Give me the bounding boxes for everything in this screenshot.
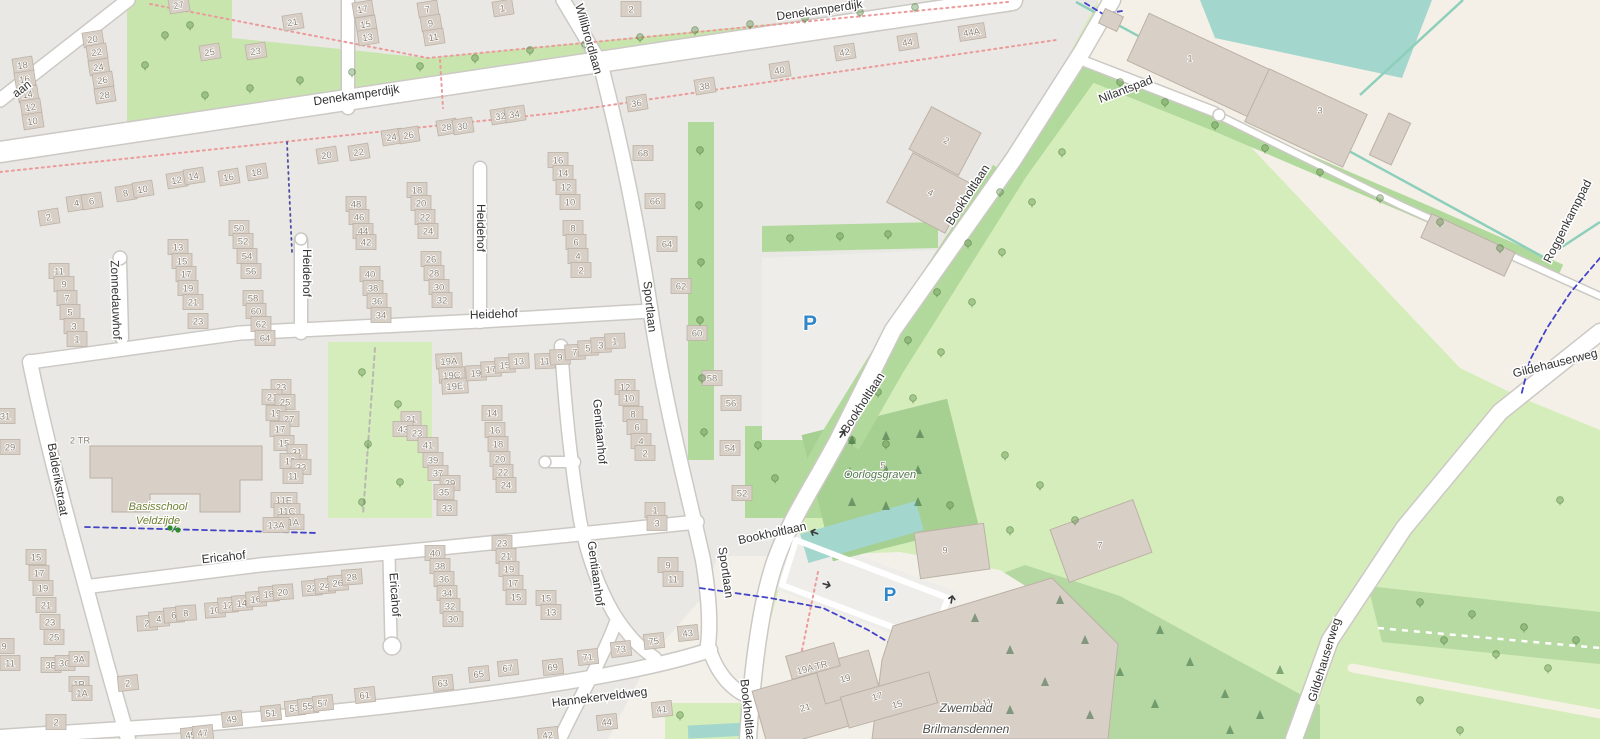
- house-number: 12: [171, 175, 183, 188]
- tree-icon: [912, 4, 919, 11]
- house-number: 61: [359, 690, 371, 702]
- house-number: 28: [346, 572, 357, 584]
- house-number: 73: [615, 644, 627, 656]
- tree-icon: [527, 47, 534, 54]
- house-number: 2: [53, 718, 58, 729]
- tree-icon: [697, 147, 704, 154]
- house-number: 9: [665, 561, 670, 572]
- house-number: 4: [575, 252, 580, 263]
- poi-label: Zwembad: [939, 701, 993, 715]
- tree-icon: [677, 712, 684, 719]
- house-number: 20: [495, 455, 506, 466]
- house-number: 10: [27, 116, 39, 129]
- house-number: 46: [354, 213, 365, 224]
- green-strip-a1: [127, 0, 232, 123]
- house-number: 19: [183, 284, 194, 295]
- tree-icon: [755, 442, 762, 449]
- house-number: 33: [442, 504, 453, 515]
- house-number: 38: [368, 284, 379, 295]
- house-number: 19E: [446, 381, 463, 393]
- house-number: 3: [598, 340, 604, 351]
- house-number: 8: [630, 410, 635, 421]
- house-number: 40: [430, 549, 441, 560]
- house-number: 13: [173, 243, 184, 254]
- house-number: 28: [429, 269, 440, 280]
- tree-icon: [162, 32, 169, 39]
- house-number: 10: [565, 198, 576, 209]
- house-number: 28: [99, 90, 111, 103]
- house-number: 36: [372, 297, 383, 308]
- house-number: 34: [509, 109, 521, 122]
- playground-icon: [167, 525, 172, 530]
- street-label: Zonnedauwhof: [108, 260, 125, 341]
- house-number: 16: [223, 172, 235, 185]
- tree-icon: [699, 375, 706, 382]
- house-number: 26: [97, 75, 109, 88]
- street-label: Heidehof: [474, 204, 488, 253]
- house-number: 25: [49, 633, 60, 644]
- tree-icon: [1212, 122, 1219, 129]
- house-number: 3: [71, 322, 76, 333]
- parking-icon: P: [884, 585, 897, 606]
- playground-icon: [175, 527, 180, 532]
- house-number: 27: [173, 0, 185, 12]
- house-number: 16: [553, 156, 564, 167]
- house-number: 1A: [76, 689, 88, 700]
- house-number: 3A: [73, 655, 85, 666]
- house-number: 36: [439, 575, 450, 586]
- house-number: 36: [631, 98, 643, 111]
- tree-icon: [1162, 99, 1169, 106]
- house-number: 55: [302, 701, 314, 713]
- house-number: 19: [470, 368, 481, 380]
- house-number: 2: [642, 449, 647, 460]
- house-number: 63: [437, 678, 449, 690]
- house-number: 31: [0, 412, 10, 423]
- house-number: 21: [188, 298, 199, 309]
- house-number: 5: [585, 343, 591, 354]
- house-number: 34: [376, 311, 387, 322]
- house-number: 1: [1187, 54, 1192, 65]
- tree-icon: [698, 259, 705, 266]
- house-number: 15: [541, 594, 552, 605]
- house-number: 22: [498, 468, 509, 479]
- tree-icon: [905, 337, 912, 344]
- tree-icon: [349, 69, 356, 76]
- house-number: 12: [25, 102, 37, 115]
- house-number: 6: [634, 423, 639, 434]
- house-number: 7: [1097, 541, 1102, 552]
- house-number: 49: [226, 714, 238, 726]
- house-number: 13: [362, 32, 374, 45]
- tree-icon: [397, 479, 404, 486]
- tree-icon: [1417, 599, 1424, 606]
- house-number: 64: [260, 334, 271, 345]
- green-strip-b1: [688, 122, 714, 460]
- house-number: 75: [648, 636, 660, 648]
- house-number: 65: [473, 669, 485, 681]
- house-number: 35: [439, 488, 450, 499]
- house-number: 32: [437, 296, 448, 307]
- house-number: 42: [361, 238, 372, 249]
- tree-icon: [1059, 149, 1066, 156]
- house-number: 18: [493, 440, 504, 451]
- tree-icon: [1317, 169, 1324, 176]
- poi-label: Basisschool: [129, 501, 188, 513]
- house-number: 24: [386, 132, 398, 145]
- tree-icon: [997, 189, 1004, 196]
- house-number: 11: [54, 267, 64, 278]
- house-number: 21: [287, 17, 299, 30]
- tree-icon: [1521, 624, 1528, 631]
- house-number: 2: [125, 678, 131, 689]
- tree-icon: [187, 22, 194, 29]
- house-number: 29: [5, 443, 16, 454]
- house-number: 10: [137, 184, 149, 197]
- house-number: 11: [5, 659, 15, 670]
- tree-icon: [365, 441, 372, 448]
- house-number: 43: [682, 628, 694, 640]
- tree-icon: [1557, 497, 1564, 504]
- house-number: 20: [321, 150, 333, 163]
- house-number: 6: [573, 238, 578, 249]
- tree-icon: [938, 349, 945, 356]
- tree-icon: [965, 240, 972, 247]
- house-number: 14: [188, 171, 200, 184]
- house-number: 10: [624, 394, 635, 405]
- house-number: 13: [513, 356, 524, 368]
- tree-icon: [969, 299, 976, 306]
- house-number: 1: [652, 506, 657, 517]
- tree-icon: [701, 429, 708, 436]
- tree-icon: [1441, 637, 1448, 644]
- tree-icon: [1493, 651, 1500, 658]
- tree-icon: [883, 441, 890, 448]
- tree-icon: [202, 92, 209, 99]
- house-number: 68: [638, 149, 649, 160]
- house-number: 42: [542, 730, 554, 739]
- house-number: 13: [546, 608, 557, 619]
- house-number: 12: [561, 183, 572, 194]
- house-number: 25: [204, 47, 216, 60]
- house-number: 1: [74, 335, 79, 346]
- house-number: 58: [707, 374, 718, 385]
- tree-icon: [747, 21, 754, 28]
- house-number: 47: [197, 728, 209, 739]
- house-number: 2: [578, 266, 583, 277]
- house-number: 32: [445, 602, 456, 613]
- house-number: 58: [248, 294, 259, 305]
- house-number: 71: [582, 652, 594, 664]
- house-number: 30: [457, 121, 469, 134]
- house-number: 16: [490, 426, 501, 437]
- house-number: 60: [692, 329, 703, 340]
- house-number: 20: [277, 587, 288, 599]
- house-number: 54: [242, 252, 253, 263]
- tree-icon: [1037, 482, 1044, 489]
- map-canvas[interactable]: 2022242628181614121027252321171513791112…: [0, 0, 1600, 739]
- house-number: 15: [31, 553, 42, 564]
- tree-icon: [1469, 611, 1476, 618]
- tree-icon: [837, 233, 844, 240]
- tree-icon: [1002, 452, 1009, 459]
- house-number: 24: [501, 481, 512, 492]
- tree-icon: [1007, 527, 1014, 534]
- house-number: 52: [737, 489, 748, 500]
- house-number: 62: [676, 282, 687, 293]
- house-number: 44: [902, 37, 914, 50]
- house-number: 17: [34, 569, 45, 580]
- tree-icon: [359, 499, 366, 506]
- house-number: 7: [64, 294, 69, 305]
- house-number: 23: [193, 317, 204, 328]
- tree-icon: [947, 502, 954, 509]
- house-number: 11: [540, 356, 550, 368]
- tree-icon: [1072, 517, 1079, 524]
- house-number: 60: [251, 307, 262, 318]
- house-number: 41: [423, 441, 434, 452]
- house-number: 23: [45, 618, 56, 629]
- house-number: 48: [351, 200, 362, 211]
- house-number: 15: [177, 257, 188, 268]
- house-number: 17: [181, 270, 192, 281]
- tree-icon: [697, 317, 704, 324]
- house-number: 3: [1317, 106, 1322, 117]
- tree-icon: [472, 55, 479, 62]
- dead-end-bulb: [383, 637, 401, 655]
- house-number: 2: [628, 5, 633, 16]
- house-number: 41: [656, 704, 668, 716]
- house-number: 22: [420, 213, 431, 224]
- tree-icon: [1545, 665, 1552, 672]
- house-number: 3: [654, 519, 659, 530]
- house-number: 21: [41, 601, 52, 612]
- house-number: 34: [442, 589, 453, 600]
- house-number: 18: [251, 167, 263, 180]
- house-number: 14: [558, 169, 569, 180]
- house-number: 11: [288, 472, 298, 483]
- house-number: 50: [234, 224, 245, 235]
- house-number: 54: [725, 444, 736, 455]
- house-number: 69: [547, 662, 559, 674]
- house-number: 5: [67, 308, 72, 319]
- house-number: 26: [403, 130, 415, 143]
- house-number: 17: [357, 4, 369, 17]
- house-number: 9: [557, 352, 563, 363]
- house-number: 22: [353, 147, 365, 160]
- tree-icon: [910, 395, 917, 402]
- house-number: 56: [726, 399, 737, 410]
- house-number: 30: [434, 283, 445, 294]
- tree-icon: [1262, 145, 1269, 152]
- tree-icon: [1497, 245, 1504, 252]
- house-number: 67: [502, 663, 514, 675]
- house-number: 19: [504, 565, 515, 576]
- house-number: 9: [942, 546, 947, 557]
- tree-icon: [1377, 195, 1384, 202]
- house-number: 26: [426, 255, 437, 266]
- house-number: 8: [570, 224, 575, 235]
- house-number: 21: [501, 552, 512, 563]
- tree-icon: [247, 85, 254, 92]
- house-number: 1: [612, 336, 618, 347]
- house-number: 14: [487, 409, 498, 420]
- house-number: 18: [412, 186, 423, 197]
- tree-icon: [696, 202, 703, 209]
- parking-icon: P: [803, 312, 817, 335]
- tree-icon: [417, 63, 424, 70]
- tree-icon: [359, 369, 366, 376]
- house-number: 40: [774, 65, 786, 78]
- house-number: 9: [1, 642, 6, 653]
- house-number: 38: [435, 562, 446, 573]
- house-number: 57: [317, 698, 329, 710]
- house-number: 40: [365, 270, 376, 281]
- house-number: 7: [572, 347, 578, 358]
- tree-icon: [395, 401, 402, 408]
- house-number: 44: [601, 717, 613, 729]
- tree-icon: [772, 475, 779, 482]
- tree-icon: [297, 77, 304, 84]
- house-number: 17: [275, 425, 286, 436]
- tree-icon: [1417, 697, 1424, 704]
- tree-icon: [1029, 199, 1036, 206]
- tree-icon: [1437, 219, 1444, 226]
- house-number: 22: [91, 47, 103, 60]
- house-number: 13A: [268, 521, 286, 532]
- house-number: 17: [508, 579, 519, 590]
- tree-icon: [1573, 637, 1580, 644]
- tree-icon: [1457, 727, 1464, 734]
- poi-label: Brilmansdennen: [923, 722, 1010, 736]
- house-number: 64: [662, 240, 673, 251]
- tree-icon: [787, 235, 794, 242]
- house-number: 8: [183, 608, 189, 619]
- house-number: 39: [428, 456, 439, 467]
- house-number: 56: [246, 267, 257, 278]
- house-number: 11: [428, 32, 439, 44]
- house-number: 23: [497, 539, 508, 550]
- house-number: 18: [17, 60, 29, 73]
- house-number: 42: [839, 47, 851, 60]
- map-viewport[interactable]: 2022242628181614121027252321171513791112…: [0, 0, 1600, 739]
- tree-icon: [692, 27, 699, 34]
- house-number: 51: [265, 708, 277, 720]
- house-number: 30: [448, 615, 459, 626]
- tree-icon: [885, 231, 892, 238]
- dead-end-bulb: [539, 456, 551, 468]
- house-number: 15: [511, 593, 522, 604]
- house-number: 2 TR: [70, 436, 91, 447]
- building-9: [914, 523, 990, 578]
- house-number: 23: [250, 46, 262, 59]
- dead-end-bulb: [1213, 109, 1225, 121]
- street-label: Heidehof: [300, 249, 314, 298]
- house-number: 11: [668, 575, 678, 586]
- tree-icon: [934, 289, 941, 296]
- dead-end-bulb: [295, 233, 307, 245]
- house-number: 19: [38, 584, 49, 595]
- tree-icon: [637, 34, 644, 41]
- house-number: 9: [61, 280, 66, 291]
- house-number: 66: [650, 197, 661, 208]
- house-number: 19A: [440, 356, 458, 368]
- tree-icon: [999, 249, 1006, 256]
- poi-label: Veldzijde: [136, 515, 180, 527]
- poi-label: Oorlogsgraven: [844, 469, 916, 481]
- house-number: 28: [441, 122, 453, 135]
- house-number: 52: [238, 237, 249, 248]
- street-label: Heidehof: [470, 306, 519, 322]
- house-number: 20: [416, 199, 427, 210]
- house-number: 62: [256, 320, 267, 331]
- tree-icon: [142, 62, 149, 69]
- house-number: 38: [699, 81, 711, 94]
- house-number: 4: [156, 614, 162, 625]
- house-number: 24: [423, 227, 434, 238]
